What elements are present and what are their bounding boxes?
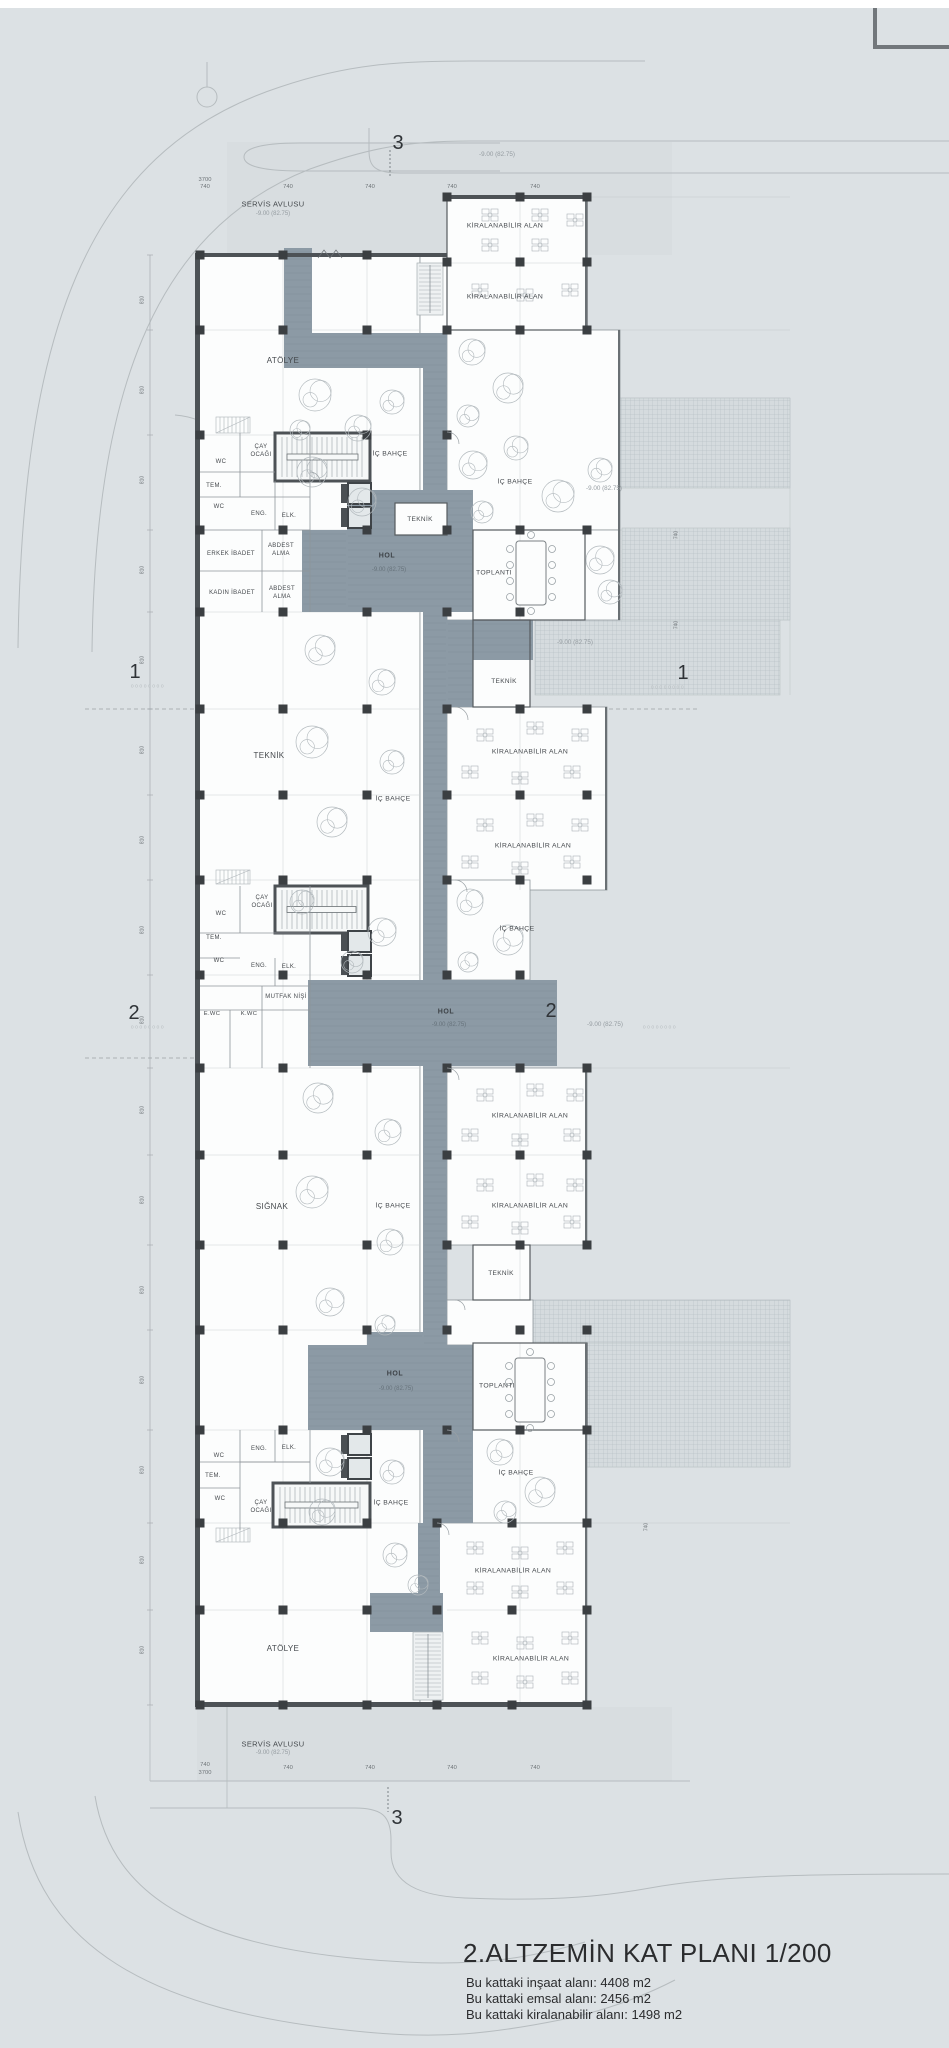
plan-stat-line: Bu kattaki inşaat alanı: 4408 m2 bbox=[466, 1975, 682, 1991]
plan-stat-line: Bu kattaki emsal alanı: 2456 m2 bbox=[466, 1991, 682, 2007]
screenshot-root: -9.00 (82.75)3700740740740740740SERVİS A… bbox=[0, 0, 949, 2048]
floor-plan-drawing bbox=[0, 0, 949, 2048]
plan-title: 2.ALTZEMİN KAT PLANI 1/200 bbox=[463, 1938, 832, 1969]
floor-plan-svg bbox=[0, 0, 949, 2048]
plan-stat-line: Bu kattaki kiralanabilir alanı: 1498 m2 bbox=[466, 2007, 682, 2023]
plan-stats: Bu kattaki inşaat alanı: 4408 m2 Bu katt… bbox=[466, 1975, 682, 2023]
